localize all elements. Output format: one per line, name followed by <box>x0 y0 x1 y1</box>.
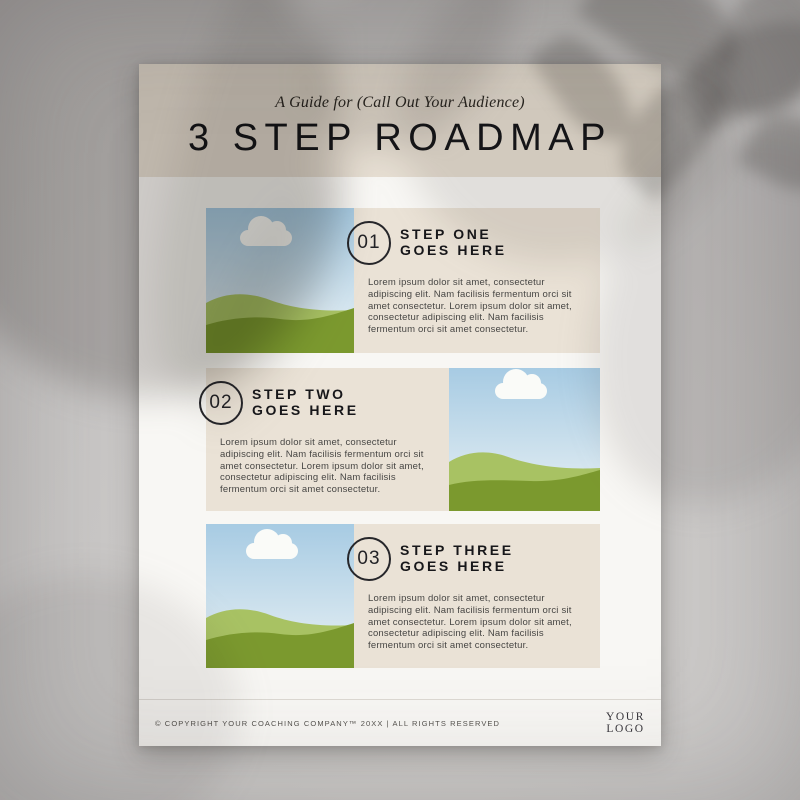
step-number-badge: 03 <box>347 537 391 581</box>
logo-text: YOUR LOGO <box>606 711 645 736</box>
hills-graphic <box>206 291 354 353</box>
step-body-text: Lorem ipsum dolor sit amet, consectetur … <box>368 277 588 336</box>
hills-graphic <box>206 606 354 668</box>
steps-content: 01 STEP ONE GOES HERE Lorem ipsum dolor … <box>139 177 661 668</box>
step-body-text: Lorem ipsum dolor sit amet, consectetur … <box>368 593 588 652</box>
leaf-shadow <box>709 0 800 126</box>
step-number: 01 <box>357 232 380 254</box>
step-section-2: 02 STEP TWO GOES HERE Lorem ipsum dolor … <box>206 368 600 511</box>
logo-line-2: LOGO <box>606 723 645 736</box>
step-title-line-1: STEP TWO <box>252 386 449 402</box>
cloud-icon <box>240 230 292 246</box>
step-section-3: 03 STEP THREE GOES HERE Lorem ipsum dolo… <box>206 524 600 668</box>
roadmap-page: A Guide for (Call Out Your Audience) 3 S… <box>139 64 661 746</box>
cloud-icon <box>246 543 298 559</box>
step-panel: 03 STEP THREE GOES HERE Lorem ipsum dolo… <box>354 524 600 668</box>
step-number-badge: 01 <box>347 221 391 265</box>
step-title-line-1: STEP ONE <box>400 226 600 242</box>
step-title: STEP ONE GOES HERE <box>400 226 600 258</box>
page-title: 3 STEP ROADMAP <box>188 117 612 160</box>
step-section-1: 01 STEP ONE GOES HERE Lorem ipsum dolor … <box>206 208 600 353</box>
logo-line-1: YOUR <box>606 711 645 724</box>
step-title-line-2: GOES HERE <box>400 558 600 574</box>
step-title-line-1: STEP THREE <box>400 542 600 558</box>
header-band: A Guide for (Call Out Your Audience) 3 S… <box>139 64 661 177</box>
landscape-image <box>206 524 354 668</box>
page-footer: © COPYRIGHT YOUR COACHING COMPANY™ 20XX … <box>139 699 661 746</box>
landscape-image <box>206 208 354 353</box>
step-title: STEP THREE GOES HERE <box>400 542 600 574</box>
landscape-image <box>449 368 600 511</box>
step-body-text: Lorem ipsum dolor sit amet, consectetur … <box>220 437 437 496</box>
step-number-badge: 02 <box>199 381 243 425</box>
step-number: 03 <box>357 548 380 570</box>
step-title: STEP TWO GOES HERE <box>252 386 449 418</box>
step-title-line-2: GOES HERE <box>400 242 600 258</box>
step-panel: 01 STEP ONE GOES HERE Lorem ipsum dolor … <box>354 208 600 353</box>
mockup-scene: A Guide for (Call Out Your Audience) 3 S… <box>0 0 800 800</box>
leaf-shadow <box>737 101 800 206</box>
page-subtitle: A Guide for (Call Out Your Audience) <box>275 94 525 112</box>
cloud-icon <box>495 383 547 399</box>
leaf-shadow <box>674 5 800 133</box>
copyright-text: © COPYRIGHT YOUR COACHING COMPANY™ 20XX … <box>155 719 500 728</box>
step-panel: 02 STEP TWO GOES HERE Lorem ipsum dolor … <box>206 368 449 511</box>
step-number: 02 <box>209 392 232 414</box>
hills-graphic <box>449 449 600 511</box>
step-title-line-2: GOES HERE <box>252 402 449 418</box>
